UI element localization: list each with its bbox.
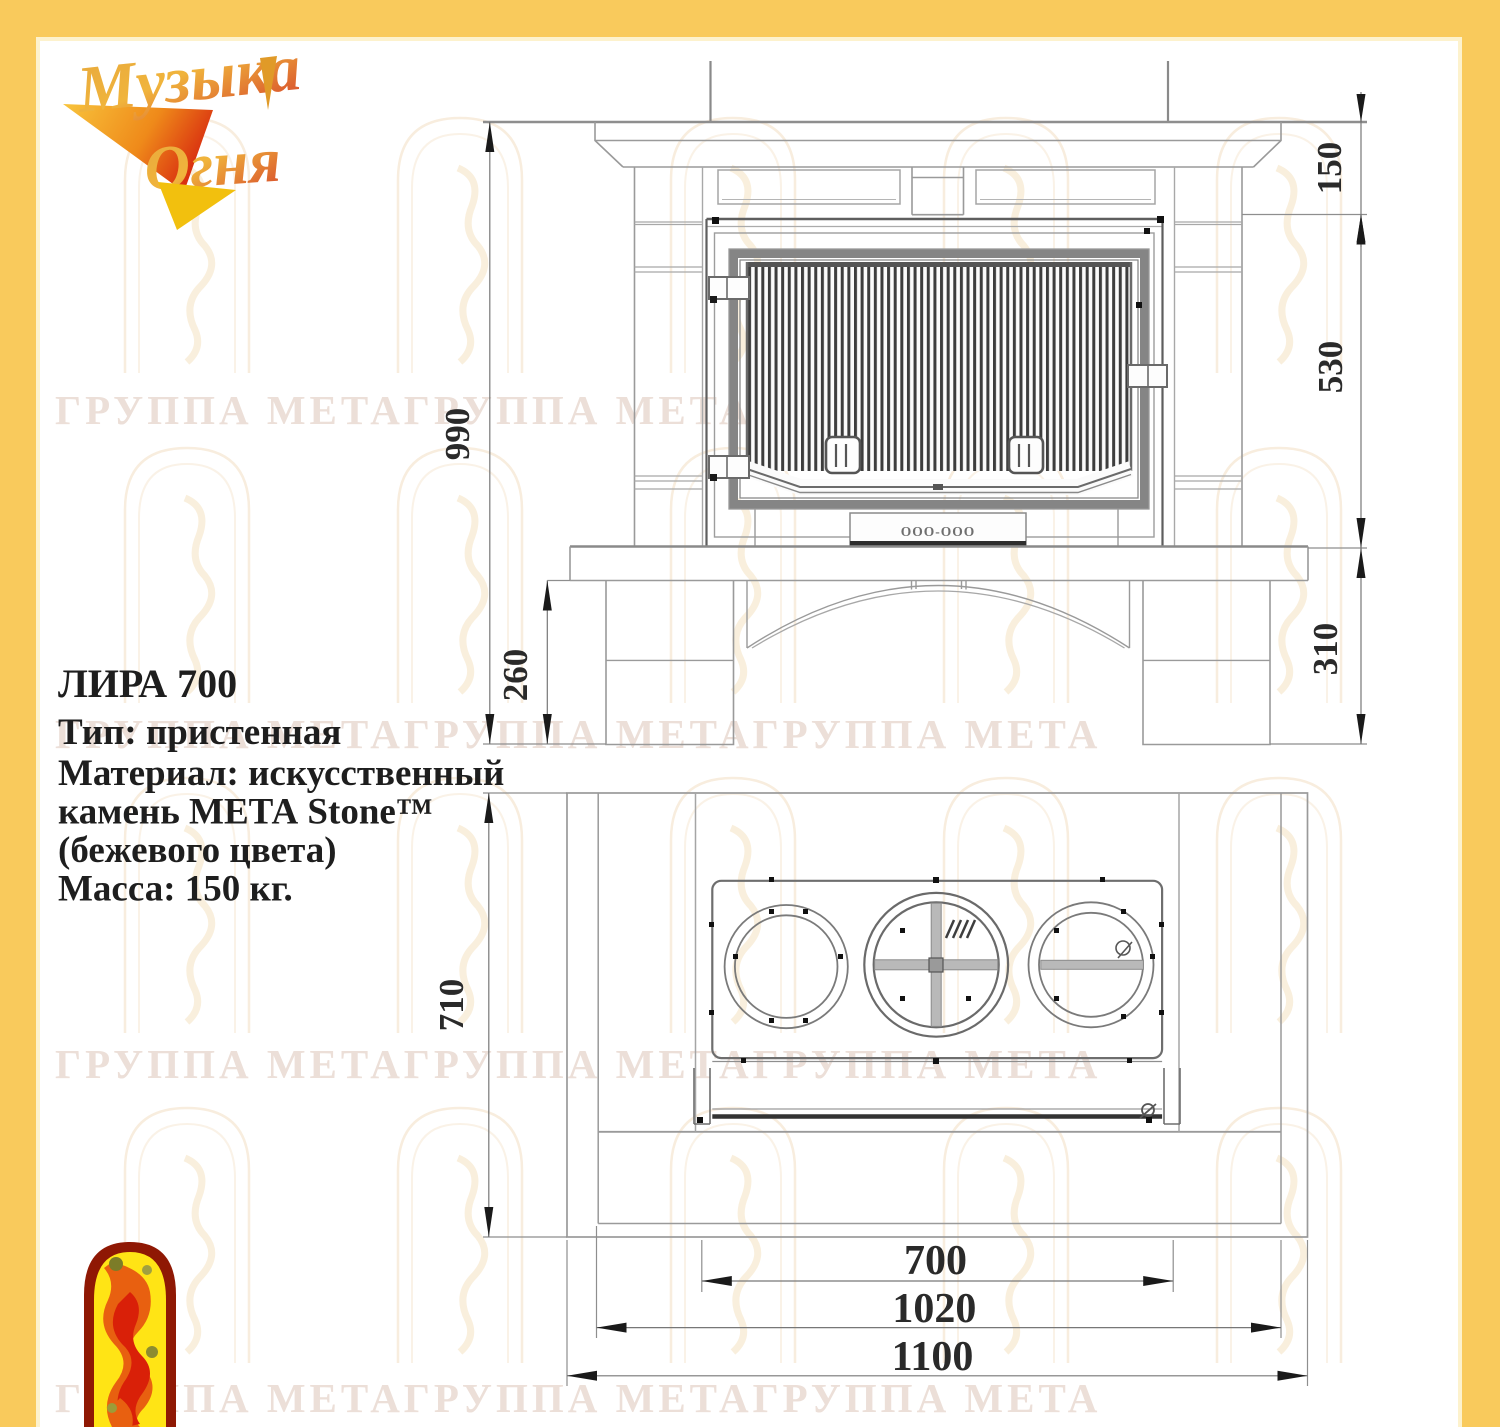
svg-text:310: 310 (1306, 623, 1345, 676)
svg-text:260: 260 (496, 649, 535, 702)
svg-text:530: 530 (1311, 341, 1350, 394)
svg-text:150: 150 (1310, 142, 1349, 195)
svg-text:ГРУППА МЕТАГРУППА МЕТАГРУППА М: ГРУППА МЕТАГРУППА МЕТАГРУППА МЕТА (55, 1041, 1101, 1087)
svg-text:(бежевого цвета): (бежевого цвета) (58, 830, 337, 871)
svg-text:990: 990 (438, 408, 477, 461)
svg-text:ГРУППА МЕТАГРУППА МЕТАГРУППА М: ГРУППА МЕТАГРУППА МЕТАГРУППА МЕТА (55, 1375, 1101, 1421)
svg-text:ООО-ООО: ООО-ООО (901, 524, 976, 539)
svg-text:камень МЕТА Stone™: камень МЕТА Stone™ (58, 792, 433, 833)
svg-text:1100: 1100 (892, 1334, 974, 1380)
svg-text:1020: 1020 (892, 1286, 976, 1332)
svg-text:Материал: искусственный: Материал: искусственный (58, 753, 504, 794)
svg-text:700: 700 (904, 1238, 967, 1284)
svg-text:Тип: пристенная: Тип: пристенная (58, 712, 341, 753)
svg-text:710: 710 (432, 979, 471, 1032)
svg-text:ЛИРА 700: ЛИРА 700 (58, 661, 237, 706)
svg-text:Масса: 150 кг.: Масса: 150 кг. (58, 869, 293, 910)
